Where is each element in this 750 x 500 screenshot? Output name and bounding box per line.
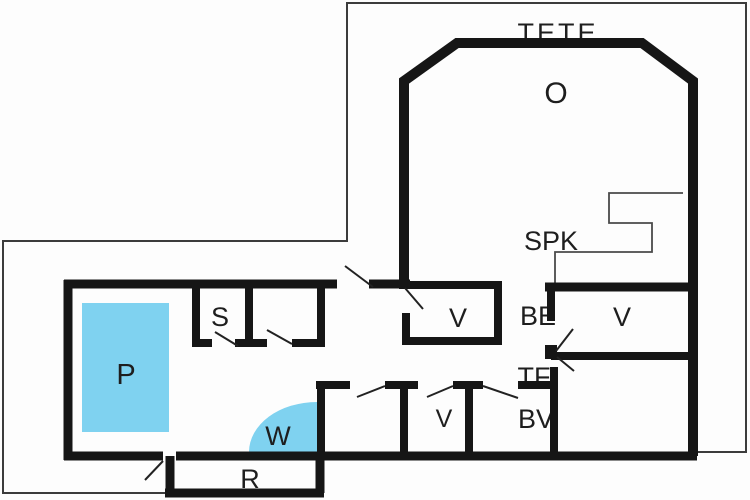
floor-plan: TETE BE TF BV (0, 0, 750, 500)
room-label-spk: SPK (524, 226, 578, 256)
room-label-o: O (544, 77, 567, 110)
room-label-r: R (240, 464, 260, 494)
room-label-w: W (265, 421, 291, 451)
room-label-bv: BV (518, 404, 554, 434)
room-label-v-bottom: V (436, 405, 453, 433)
room-label-v-right: V (613, 302, 631, 332)
room-label-v-middle: V (449, 303, 467, 333)
room-label-s: S (211, 302, 229, 332)
floor-plan-canvas: TETE BE TF BV (0, 0, 750, 500)
room-label-p: P (116, 359, 135, 391)
wall-door-post-block (545, 345, 557, 359)
